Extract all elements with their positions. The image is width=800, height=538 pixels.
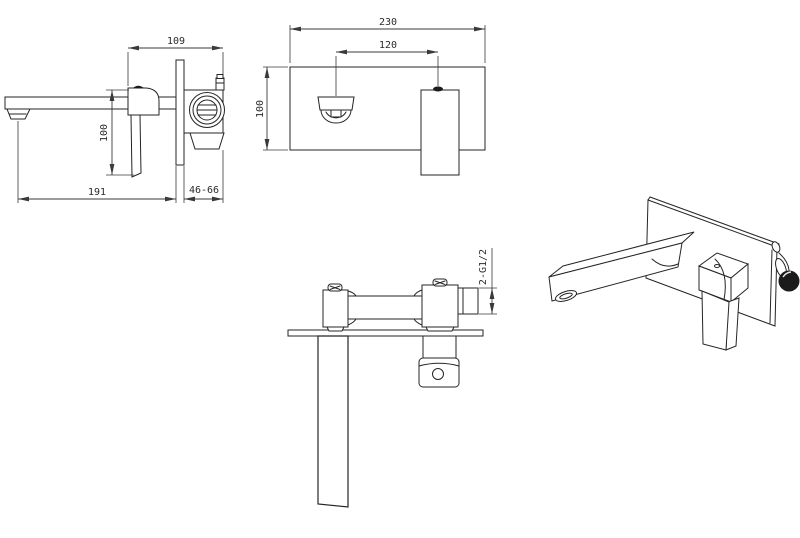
dim-thread-spec: 2-G1/2 <box>478 248 497 314</box>
top-thread-connector <box>458 288 478 314</box>
dim-label-body-depth: 109 <box>167 36 185 47</box>
dim-label-side-height: 100 <box>99 124 110 142</box>
dim-wall-embed: 46-66 <box>184 150 223 203</box>
top-wall-plate <box>288 330 483 336</box>
top-right-foot <box>426 327 454 331</box>
cylinder-fillet <box>414 290 422 296</box>
cylinder-fillet <box>348 319 356 325</box>
side-handle-lever <box>131 115 141 177</box>
top-handle-screw-hole <box>433 369 444 380</box>
dim-plate-height: 100 <box>255 67 288 150</box>
front-handle-nub <box>433 87 443 92</box>
front-view: 230 120 100 <box>255 17 485 175</box>
dim-label-spout-reach: 191 <box>88 187 106 198</box>
side-cartridge-pin <box>133 86 144 88</box>
front-spout-outlet-slot <box>331 110 341 117</box>
front-handle <box>421 90 459 175</box>
iso-thread-connector <box>779 271 800 292</box>
top-spout <box>318 336 348 507</box>
plate-thickness-edge <box>648 197 650 200</box>
top-view: 2-G1/2 <box>288 248 497 507</box>
top-left-foot <box>327 327 344 331</box>
cylinder-fillet <box>348 291 356 296</box>
dim-label-plate-width: 230 <box>379 17 397 28</box>
side-valve-body-lower <box>190 133 224 149</box>
front-spout-outlet-cup <box>318 97 354 110</box>
side-wall-plate <box>176 60 184 165</box>
side-top-nub-cap <box>217 75 223 79</box>
perspective-view <box>549 197 800 350</box>
side-cartridge-housing <box>128 88 159 115</box>
faucet-technical-drawing: 109 100 191 46-66 <box>0 0 800 538</box>
top-right-mount-block <box>422 285 458 327</box>
dim-label-thread-spec: 2-G1/2 <box>478 249 489 285</box>
top-handle-stem <box>423 336 456 358</box>
dim-label-spacing: 120 <box>379 40 397 51</box>
iso-lever-front-face <box>702 291 729 350</box>
dim-spout-reach: 191 <box>18 121 176 203</box>
technical-drawing-page: 109 100 191 46-66 <box>0 0 800 538</box>
side-top-nub <box>216 78 224 90</box>
top-left-mount-block <box>323 290 348 327</box>
side-view: 109 100 191 46-66 <box>5 36 225 203</box>
dim-label-plate-height: 100 <box>255 100 266 118</box>
dim-label-wall-embed: 46-66 <box>189 185 219 196</box>
cylinder-fillet <box>414 319 422 325</box>
